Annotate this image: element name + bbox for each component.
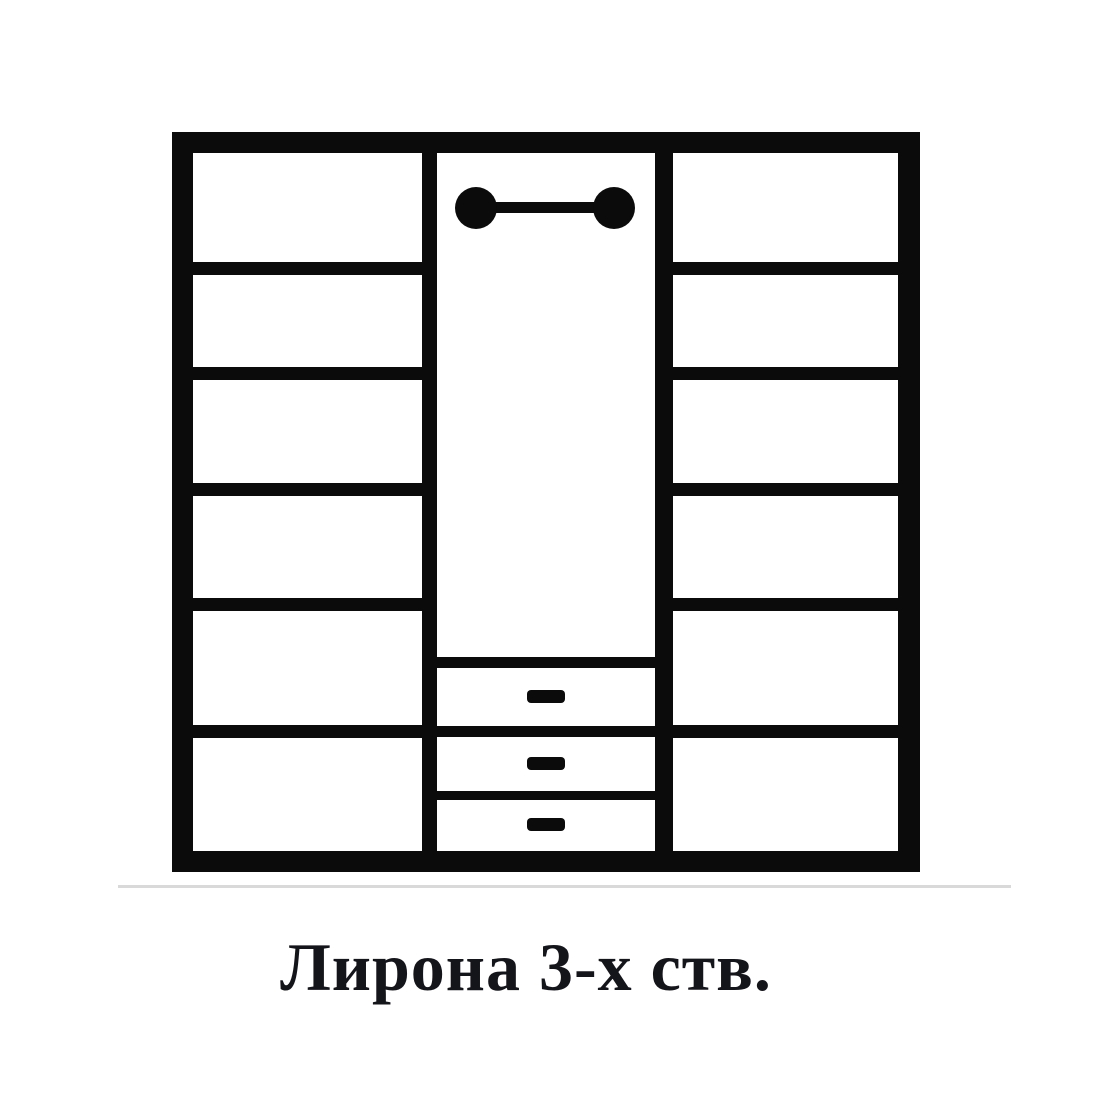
left-shelf-line xyxy=(193,367,422,380)
product-caption: Лирона 3-х ств. xyxy=(0,928,1052,1006)
left-shelf-line xyxy=(193,262,422,275)
left-shelf-line xyxy=(193,725,422,738)
left-section-divider xyxy=(422,153,437,851)
right-shelf-line xyxy=(673,598,898,611)
right-shelf-line xyxy=(673,725,898,738)
right-shelf-line xyxy=(673,483,898,496)
drawer-divider xyxy=(437,726,655,737)
drawer-handle-icon xyxy=(527,690,565,703)
drawer-handle-icon xyxy=(527,818,565,831)
right-shelf-line xyxy=(673,367,898,380)
right-section-divider xyxy=(655,153,673,851)
rod-end-right-icon xyxy=(593,187,635,229)
rod-end-left-icon xyxy=(455,187,497,229)
right-shelf-line xyxy=(673,262,898,275)
drawer-handle-icon xyxy=(527,757,565,770)
floor-shadow-line xyxy=(118,885,1011,888)
left-shelf-line xyxy=(193,483,422,496)
drawer-divider xyxy=(437,791,655,800)
product-schematic-image: Лирона 3-х ств. xyxy=(0,0,1100,1100)
drawer-divider xyxy=(437,657,655,668)
wardrobe-interior xyxy=(193,153,898,851)
left-shelf-line xyxy=(193,598,422,611)
